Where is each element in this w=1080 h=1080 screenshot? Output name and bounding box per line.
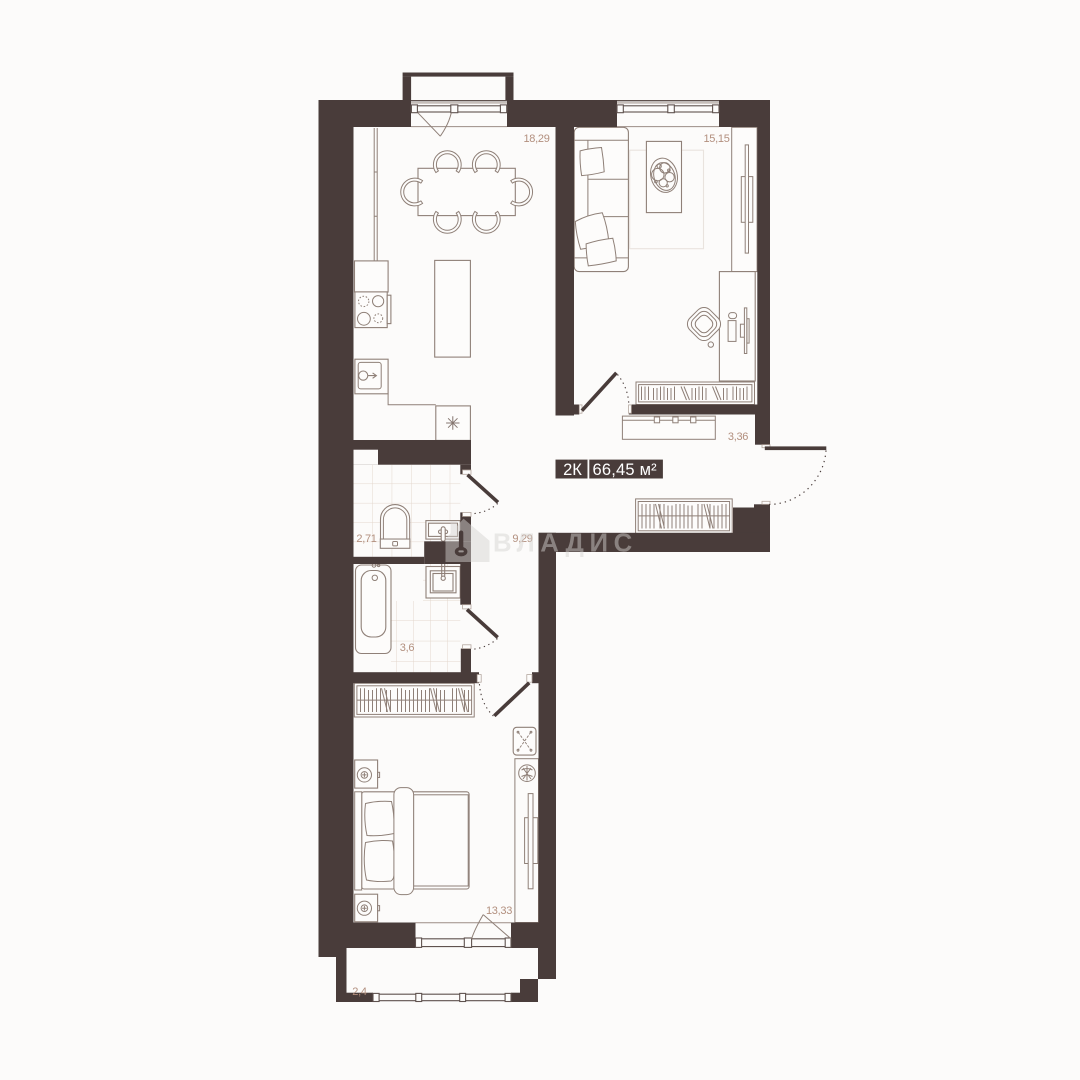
svg-text:2,71: 2,71 bbox=[356, 533, 376, 545]
svg-text:2,4: 2,4 bbox=[352, 986, 367, 998]
svg-text:3,6: 3,6 bbox=[400, 642, 415, 654]
svg-text:66,45 м²: 66,45 м² bbox=[593, 461, 658, 479]
svg-text:2К: 2К bbox=[563, 461, 582, 479]
svg-text:ВЛАДИС: ВЛАДИС bbox=[493, 529, 638, 557]
svg-text:15,15: 15,15 bbox=[703, 133, 729, 145]
svg-text:18,29: 18,29 bbox=[523, 133, 549, 145]
svg-text:13,33: 13,33 bbox=[486, 905, 512, 917]
svg-text:3,36: 3,36 bbox=[728, 431, 748, 443]
